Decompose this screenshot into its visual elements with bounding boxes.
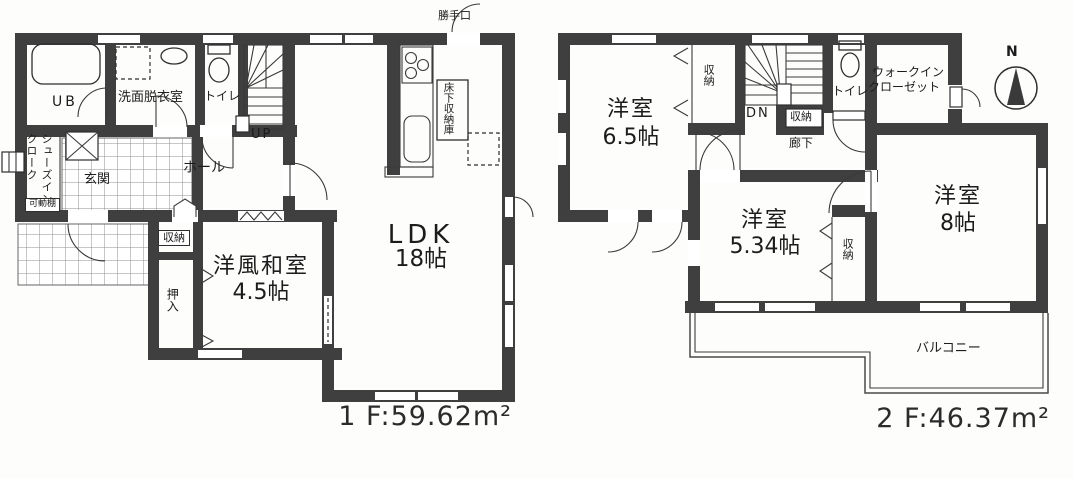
compass-icon (995, 67, 1037, 109)
north-label: N (1006, 45, 1018, 60)
closet-label-2f-b: 収納 (790, 111, 812, 123)
toilet-icon-2f (839, 41, 861, 77)
room-size-japanese-room: 4.5帖 (204, 281, 318, 305)
room-label-washroom: 洗面脱衣室 (118, 91, 183, 105)
room-label-toilet-1f: トイレ (204, 90, 240, 103)
room-label-hall: ホール (183, 161, 225, 176)
floor-hatch-icon (468, 133, 499, 165)
room-size-bedroom3: 8帖 (926, 212, 990, 236)
closet-label-2f-c: 収納 (841, 238, 853, 260)
floor2-area-label: 2 F:46.37m² (838, 404, 1050, 434)
room-label-toilet-2f: トイレ (832, 85, 868, 98)
balcony-label: バルコニー (916, 342, 981, 356)
bathtub-icon (32, 44, 100, 84)
floor1-plan (2, 4, 533, 402)
balcony-railing (690, 313, 1048, 393)
stairs-up-label: UP (251, 128, 272, 142)
floor-plan-page: UB 洗面脱衣室 トイレ UP ホール 玄関 シューズインクローク 可動棚 収納… (0, 0, 1074, 478)
room-label-entrance: 玄関 (84, 173, 110, 187)
washing-machine-icon (116, 47, 150, 79)
walk-in-closet-label-line2: クローゼット (868, 81, 940, 94)
room-label-bedroom3: 洋室 (926, 185, 990, 209)
toilet-icon-1f (208, 45, 230, 82)
room-label-bedroom2: 洋室 (733, 209, 797, 233)
kitchen-sink-icon (404, 116, 430, 162)
room-label-unit-bath: UB (52, 95, 78, 110)
closet-door-marks-2f-b (820, 223, 832, 279)
exterior-door-icon (2, 152, 24, 172)
staircase-2f (745, 45, 823, 105)
closet-label-2f-a: 収納 (702, 64, 714, 86)
closet-door-marks-2f-a (674, 48, 688, 116)
label-movable-shelf: 可動棚 (25, 198, 60, 212)
room-size-ldk: 18帖 (376, 247, 466, 272)
sink-icon (161, 48, 187, 64)
oshiire-label: 押入 (165, 288, 178, 312)
underfloor-storage-label: 床下収納庫 (442, 82, 454, 140)
back-door-label: 勝手口 (438, 10, 471, 22)
floor1-area-label: 1 F:59.62m² (290, 402, 512, 432)
corridor-label: 廊下 (789, 137, 813, 150)
floor2-walls (558, 33, 1048, 313)
room-size-bedroom1: 6.5帖 (586, 126, 676, 150)
room-label-bedroom1: 洋室 (586, 98, 676, 122)
closet-label-1f: 収納 (158, 230, 190, 246)
walk-in-closet-label-line1: ウォークイン (872, 66, 944, 79)
stairs-down-label: DN (746, 107, 770, 121)
room-size-bedroom2: 5.34帖 (718, 235, 812, 259)
room-label-japanese-room: 洋風和室 (204, 255, 318, 279)
